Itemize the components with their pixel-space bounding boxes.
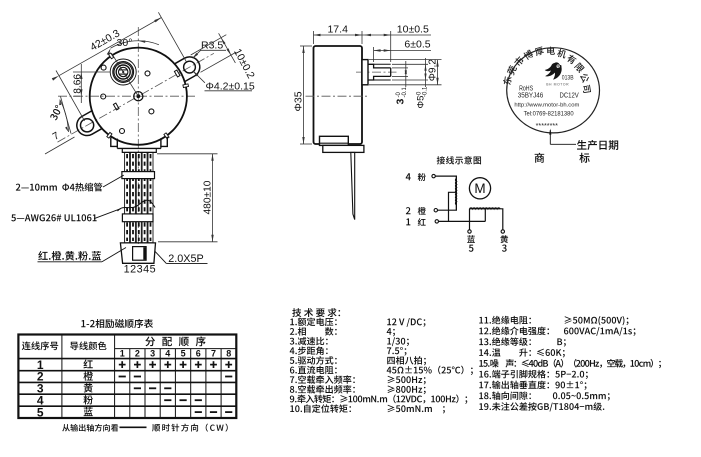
svg-text:Tel:0769-82181380: Tel:0769-82181380: [524, 111, 574, 118]
svg-text:7: 7: [211, 349, 216, 359]
svg-text:M: M: [474, 181, 485, 196]
svg-text:3: 3: [395, 99, 407, 105]
svg-text:6: 6: [196, 349, 201, 359]
svg-text:Φ35: Φ35: [292, 91, 304, 111]
svg-text:3: 3: [150, 349, 155, 359]
svg-text:35BYJ46: 35BYJ46: [518, 91, 544, 100]
svg-text:8: 8: [226, 349, 231, 359]
svg-text:8.66: 8.66: [72, 74, 83, 94]
svg-text:12345: 12345: [124, 263, 157, 275]
svg-text:BH MOTOR: BH MOTOR: [546, 82, 569, 86]
svg-text:http://www.motor-bh.com: http://www.motor-bh.com: [514, 102, 579, 108]
svg-text:Φ9.2: Φ9.2: [427, 59, 438, 82]
svg-text:1: 1: [120, 349, 125, 359]
svg-text:R: R: [556, 64, 559, 69]
svg-text:R3.5: R3.5: [201, 40, 223, 52]
svg-text:2: 2: [135, 349, 140, 359]
svg-text:480±10: 480±10: [202, 180, 213, 214]
svg-text:10±0.5: 10±0.5: [397, 23, 429, 35]
svg-text:6±0.5: 6±0.5: [404, 38, 430, 50]
svg-text:-0.1: -0.1: [402, 86, 408, 97]
svg-text:DC12V: DC12V: [560, 90, 579, 99]
svg-text:5: 5: [37, 405, 44, 419]
svg-text:4: 4: [165, 349, 170, 359]
svg-text:-0.1: -0.1: [422, 86, 428, 97]
svg-text:5: 5: [181, 349, 186, 359]
svg-text:013B: 013B: [562, 75, 574, 82]
svg-text:17.4: 17.4: [327, 23, 348, 35]
svg-text:********: ********: [536, 121, 558, 130]
